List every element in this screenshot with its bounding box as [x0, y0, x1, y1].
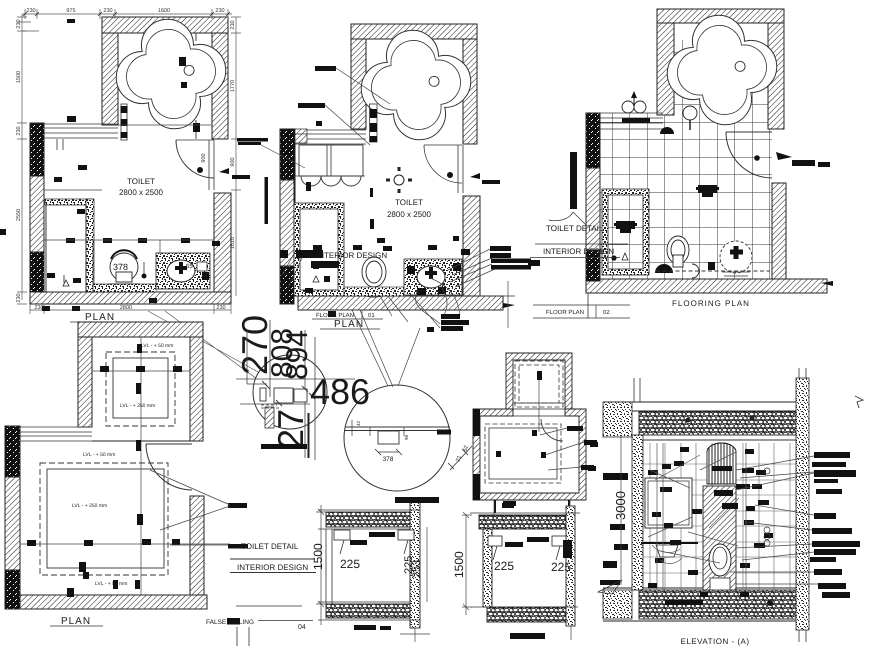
svg-text:230: 230 [16, 19, 22, 28]
svg-text:225: 225 [551, 560, 571, 574]
svg-text:975: 975 [66, 8, 75, 14]
svg-text:LVL - + 250 mm: LVL - + 250 mm [72, 503, 107, 509]
svg-text:LVL - + 50 mm: LVL - + 50 mm [141, 343, 173, 349]
svg-text:230: 230 [103, 8, 112, 14]
svg-text:486: 486 [310, 371, 370, 412]
svg-text:1500: 1500 [452, 551, 466, 578]
svg-text:230: 230 [215, 8, 224, 14]
svg-text:PLAN: PLAN [334, 319, 364, 330]
svg-text:1600: 1600 [158, 8, 170, 14]
svg-text:PLAN: PLAN [61, 616, 91, 627]
svg-text:TOILET DETAIL: TOILET DETAIL [241, 542, 299, 551]
svg-text:INTERIOR DESIGN: INTERIOR DESIGN [237, 563, 308, 572]
svg-text:2800 x 2500: 2800 x 2500 [387, 210, 432, 219]
svg-text:LVL - + 250 mm: LVL - + 250 mm [120, 403, 155, 409]
svg-text:TOILET: TOILET [395, 198, 423, 207]
svg-text:FLOORING PLAN: FLOORING PLAN [672, 299, 750, 308]
svg-text:FLOOR PLAN: FLOOR PLAN [546, 309, 584, 316]
svg-text:FLOOR PLAN: FLOOR PLAN [316, 312, 354, 319]
svg-text:TOILET DETAIL: TOILET DETAIL [546, 224, 604, 233]
svg-text:42: 42 [356, 420, 361, 426]
svg-text:1610: 1610 [230, 237, 236, 249]
svg-text:900: 900 [201, 153, 207, 162]
svg-text:1500: 1500 [16, 71, 22, 83]
svg-text:230: 230 [216, 305, 225, 311]
svg-text:INTERIOR DESIGN: INTERIOR DESIGN [316, 251, 387, 260]
svg-text:1500: 1500 [311, 543, 325, 570]
svg-text:900: 900 [230, 157, 236, 166]
svg-text:230: 230 [230, 20, 236, 29]
svg-text:98: 98 [404, 434, 409, 440]
svg-text:02: 02 [603, 309, 610, 316]
svg-text:2800 x 2500: 2800 x 2500 [119, 188, 164, 197]
svg-text:225: 225 [340, 557, 360, 571]
svg-text:230: 230 [16, 293, 22, 302]
svg-text:01: 01 [368, 312, 375, 319]
svg-text:55: 55 [186, 263, 193, 270]
svg-text:1770: 1770 [230, 80, 236, 92]
svg-text:TOILET: TOILET [127, 177, 155, 186]
svg-text:225: 225 [403, 556, 415, 574]
svg-text:2800: 2800 [120, 305, 132, 311]
svg-text:230: 230 [16, 126, 22, 135]
svg-text:INTERIOR DESIGN: INTERIOR DESIGN [543, 247, 614, 256]
svg-text:PLAN: PLAN [85, 312, 115, 323]
svg-text:378: 378 [383, 456, 394, 463]
svg-text:04: 04 [298, 624, 306, 631]
svg-text:LVL - + 50 mm: LVL - + 50 mm [83, 452, 115, 458]
svg-text:230: 230 [26, 8, 35, 14]
svg-text:27: 27 [270, 409, 311, 449]
svg-text:378: 378 [113, 262, 128, 272]
svg-text:ELEVATION - (A): ELEVATION - (A) [681, 637, 750, 646]
svg-text:2550: 2550 [16, 209, 22, 221]
svg-text:LVL - + 50 mm: LVL - + 50 mm [95, 581, 127, 587]
svg-text:225: 225 [494, 559, 514, 573]
svg-text:3000: 3000 [613, 491, 628, 520]
